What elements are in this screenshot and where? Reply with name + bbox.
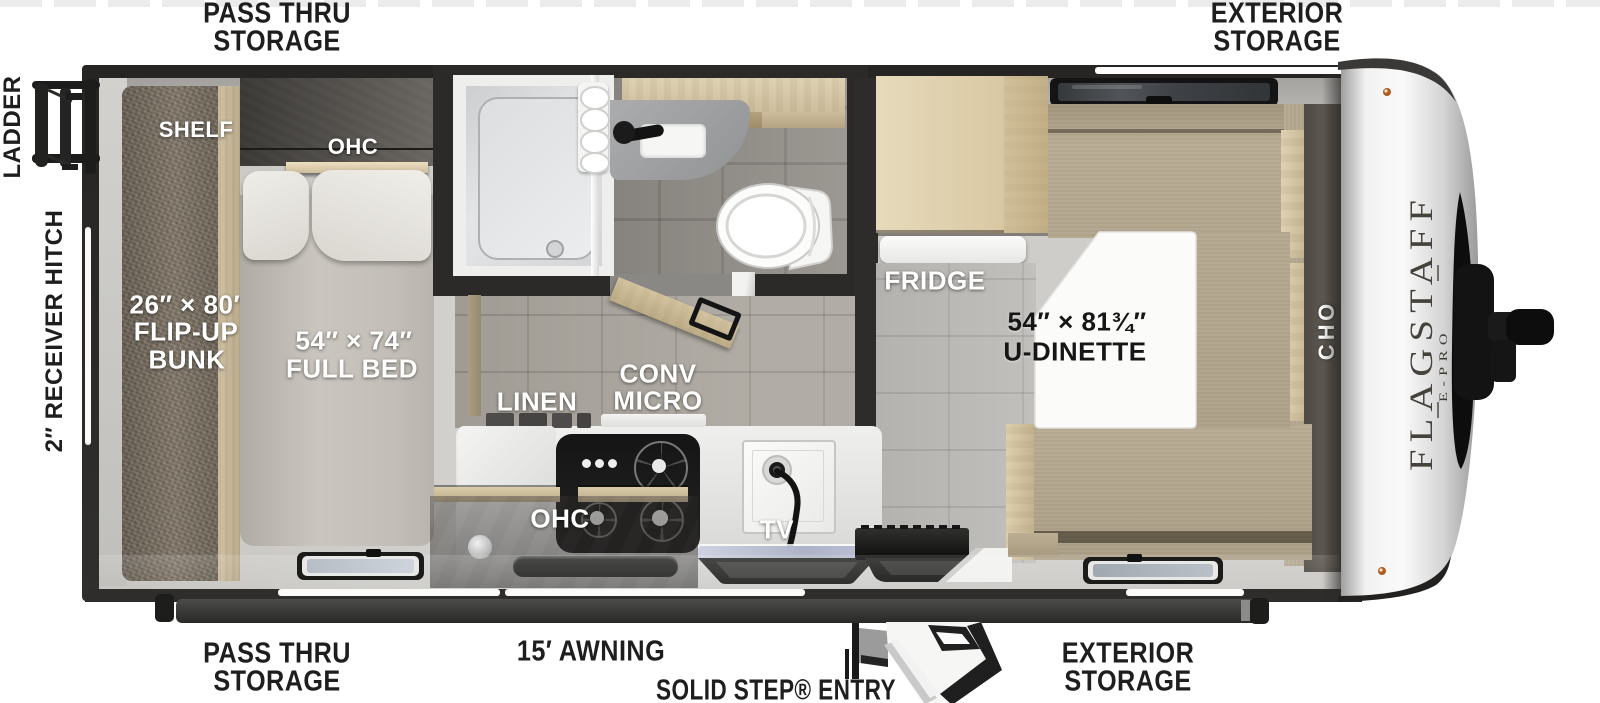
- svg-text:FLAGSTAFF: FLAGSTAFF: [1404, 193, 1440, 471]
- svg-text:E-PRO: E-PRO: [1436, 328, 1450, 402]
